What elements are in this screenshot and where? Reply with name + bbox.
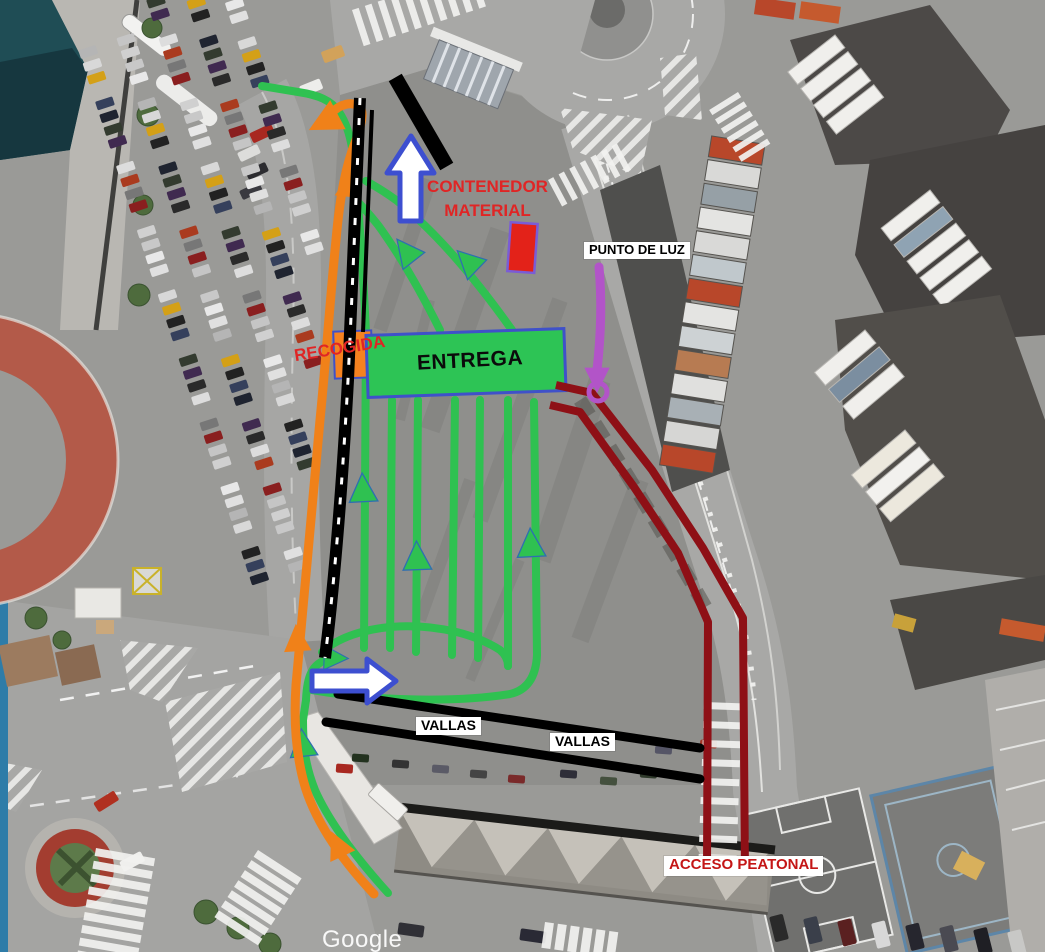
contenedor-material-line1: CONTENEDOR — [425, 175, 550, 199]
vallas-right-label: VALLAS — [550, 733, 615, 751]
yellow-x-box — [133, 568, 161, 594]
material-container-marker — [507, 222, 537, 273]
annotated-satellite-map: CONTENEDOR MATERIAL PUNTO DE LUZ RECOGID… — [0, 0, 1045, 952]
contenedor-material-line2: MATERIAL — [425, 199, 550, 223]
green-lane — [416, 400, 418, 652]
terrain-layer — [0, 0, 1045, 952]
vallas-left-label: VALLAS — [416, 717, 481, 735]
acceso-peatonal-label: ACCESO PEATONAL — [664, 856, 823, 876]
green-lane — [390, 400, 392, 648]
contenedor-material-label: CONTENEDOR MATERIAL — [425, 175, 550, 223]
punto-de-luz-label: PUNTO DE LUZ — [584, 242, 690, 259]
kiosk — [75, 588, 121, 618]
google-watermark: Google — [322, 927, 402, 952]
green-lane — [452, 400, 455, 655]
satellite-base-map — [0, 0, 1045, 952]
green-lane — [478, 400, 480, 658]
